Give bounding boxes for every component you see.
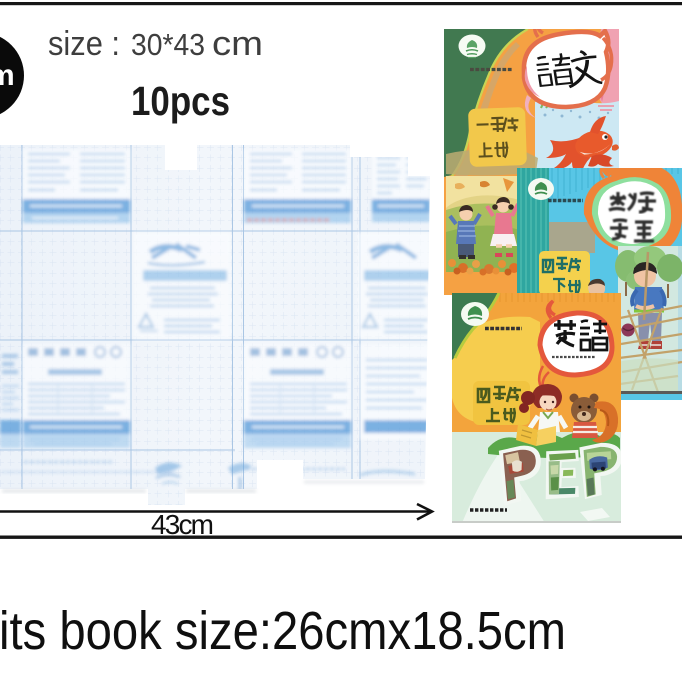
svg-text:size :: size : [48,25,120,63]
svg-text:cm: cm [212,25,263,63]
svg-text:10pcs: 10pcs [131,78,230,124]
svg-text:m: m [0,59,15,92]
svg-text:its book size:26cmx18.5cm: its book size:26cmx18.5cm [0,601,566,661]
svg-text:30*43: 30*43 [131,27,205,62]
svg-text:43cm: 43cm [151,509,214,540]
